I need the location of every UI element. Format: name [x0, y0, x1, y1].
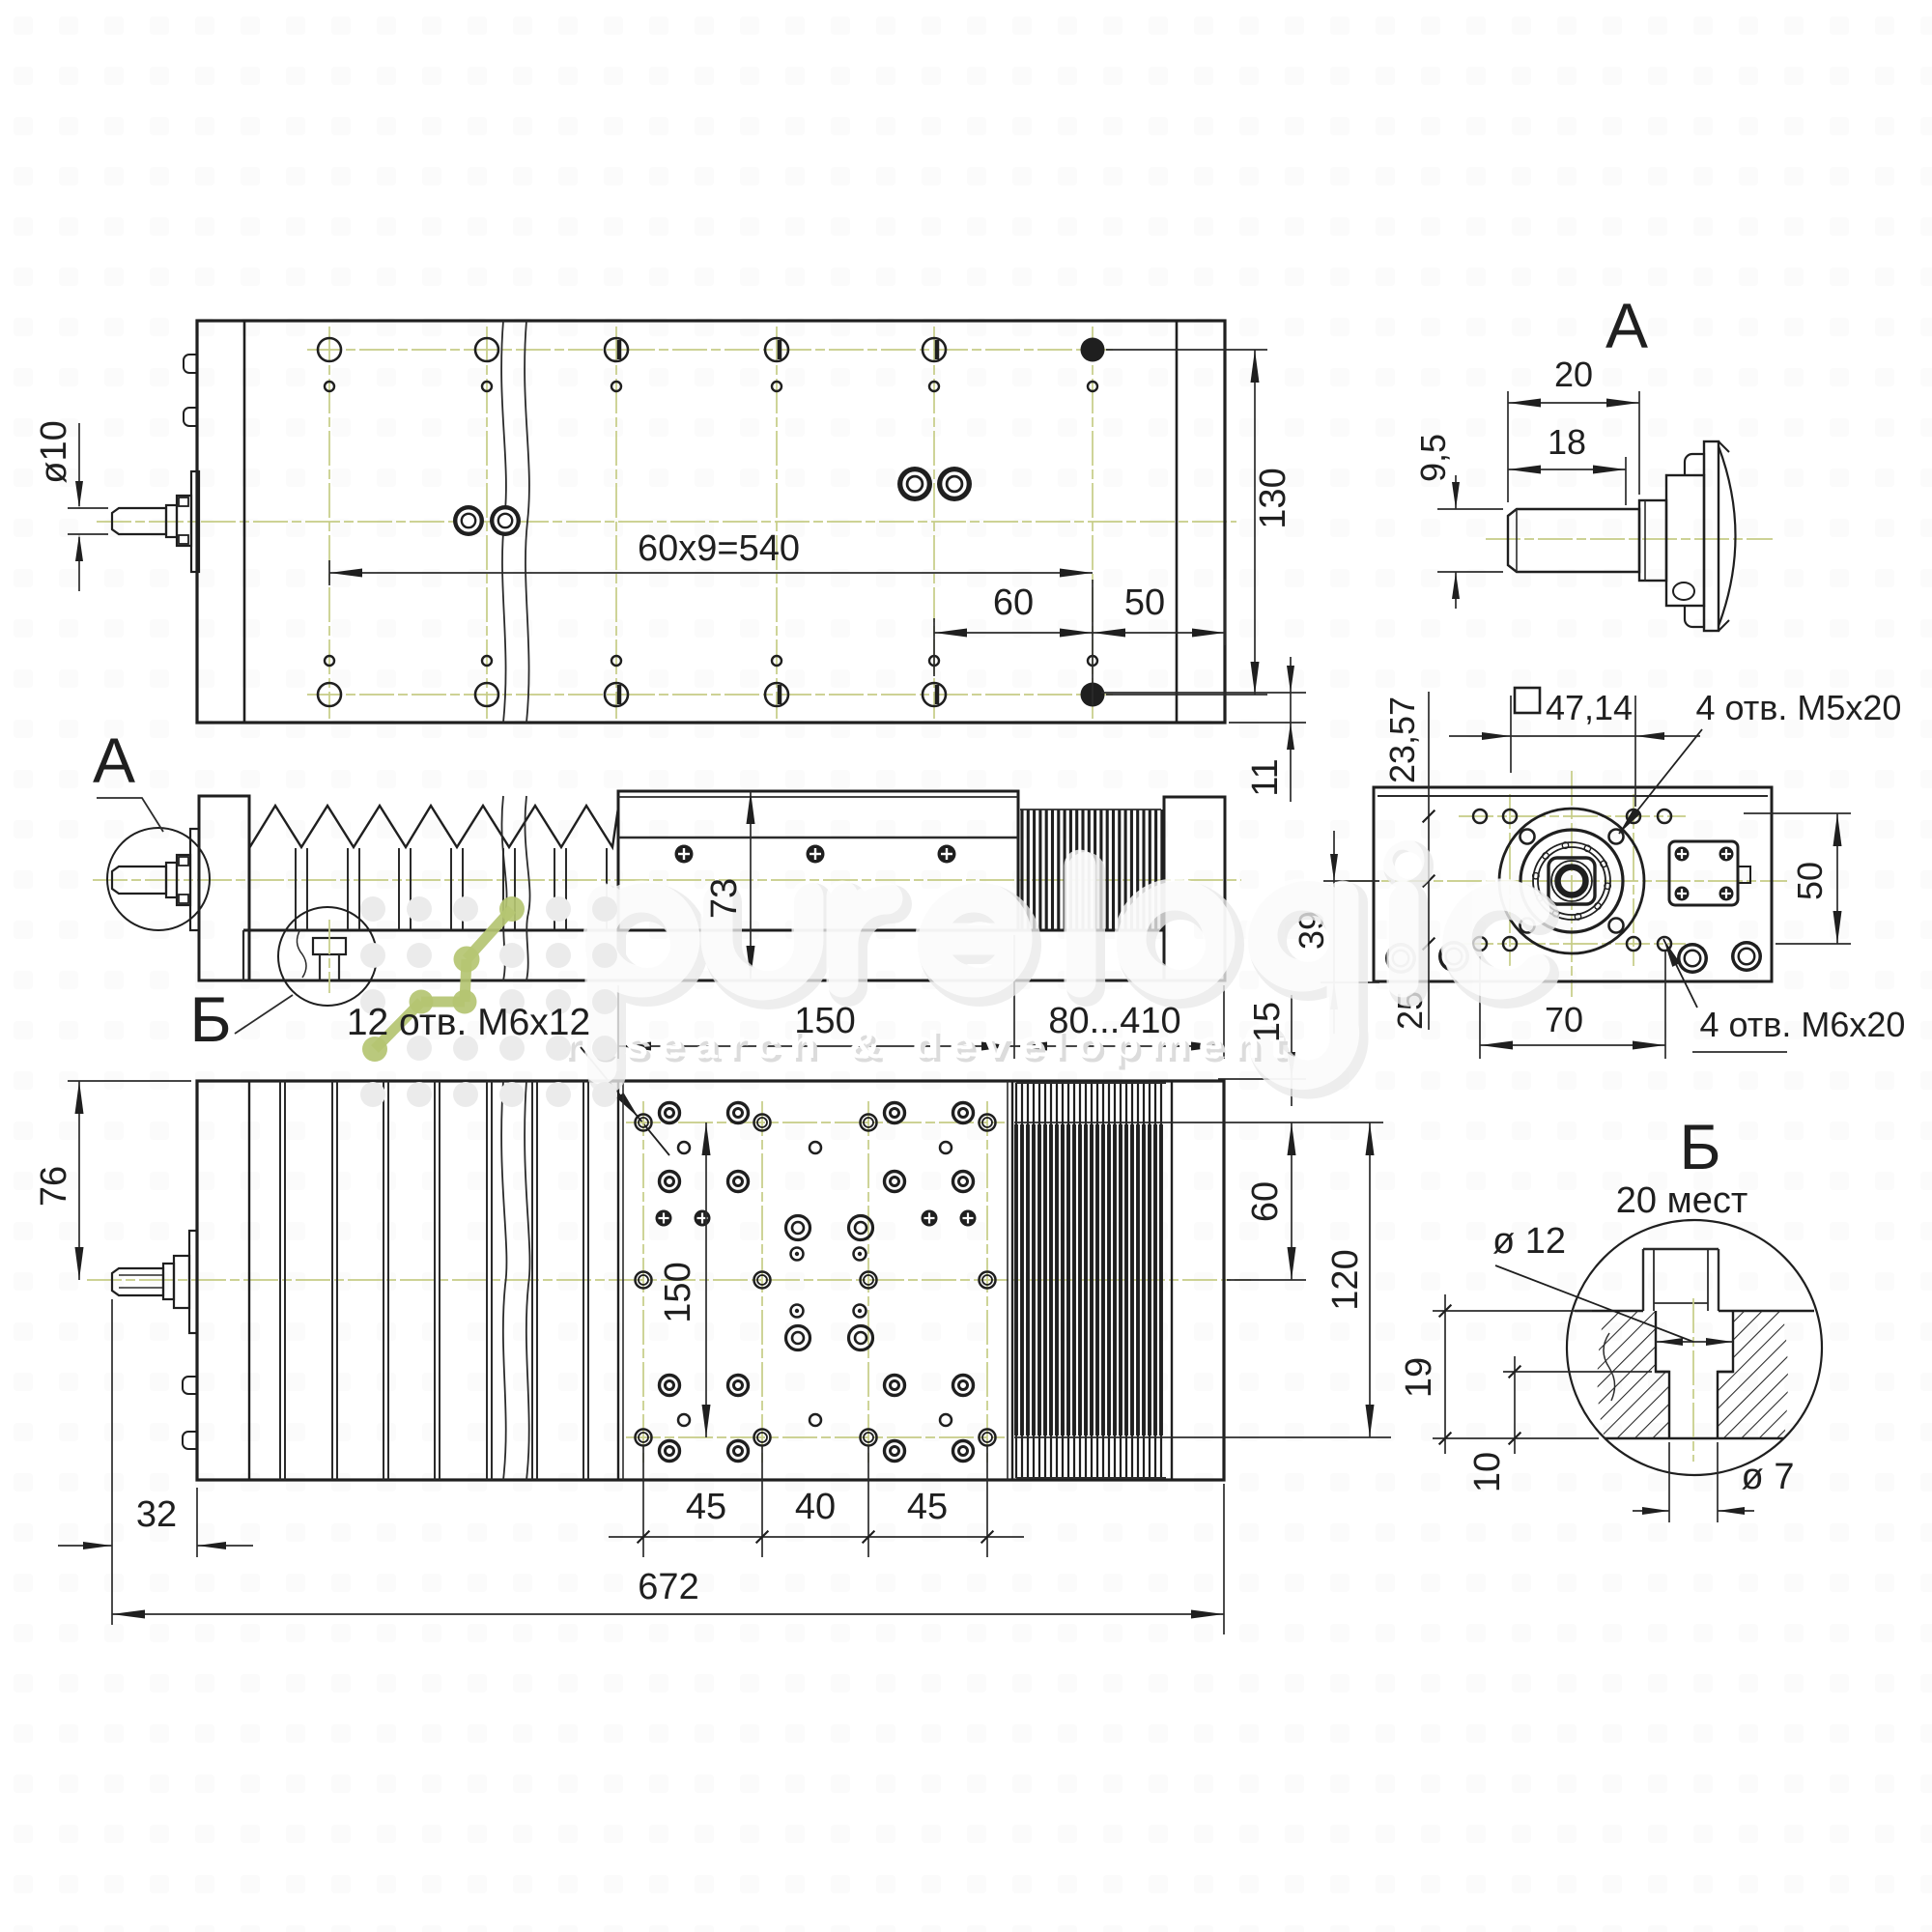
svg-text:10: 10: [1467, 1452, 1508, 1492]
svg-text:130: 130: [1253, 468, 1293, 528]
svg-text:А: А: [1605, 290, 1648, 361]
svg-text:19: 19: [1399, 1357, 1439, 1398]
svg-text:20 мест: 20 мест: [1616, 1180, 1748, 1221]
svg-text:Б: Б: [1679, 1111, 1720, 1182]
svg-text:А: А: [93, 724, 135, 796]
svg-text:research & development: research & development: [562, 1024, 1294, 1066]
svg-text:4 отв. М6х20: 4 отв. М6х20: [1700, 1005, 1906, 1044]
svg-text:9,5: 9,5: [1413, 434, 1453, 482]
svg-text:47,14: 47,14: [1546, 688, 1633, 727]
svg-text:Б: Б: [189, 983, 231, 1055]
svg-text:50: 50: [1790, 862, 1830, 900]
svg-text:40: 40: [795, 1487, 836, 1527]
svg-text:150: 150: [794, 1001, 855, 1041]
svg-text:45: 45: [686, 1487, 726, 1527]
svg-text:ø10: ø10: [34, 420, 74, 483]
svg-text:76: 76: [34, 1166, 74, 1207]
svg-text:50: 50: [1124, 582, 1165, 623]
svg-text:4 отв. М5х20: 4 отв. М5х20: [1696, 688, 1902, 727]
svg-text:18: 18: [1548, 422, 1586, 462]
svg-text:73: 73: [704, 878, 745, 919]
svg-text:80...410: 80...410: [1048, 1001, 1180, 1041]
svg-text:60x9=540: 60x9=540: [638, 528, 800, 569]
svg-text:672: 672: [638, 1567, 698, 1607]
svg-text:70: 70: [1545, 1000, 1583, 1039]
svg-text:60: 60: [993, 582, 1034, 623]
svg-text:15: 15: [1247, 1002, 1288, 1042]
svg-text:45: 45: [907, 1487, 948, 1527]
svg-text:60: 60: [1245, 1181, 1286, 1222]
svg-text:150: 150: [658, 1262, 698, 1322]
svg-text:20: 20: [1554, 355, 1593, 394]
svg-text:11: 11: [1245, 758, 1286, 796]
svg-text:12 отв. М6х12: 12 отв. М6х12: [347, 1002, 590, 1043]
svg-text:32: 32: [136, 1494, 177, 1535]
svg-text:120: 120: [1325, 1249, 1366, 1310]
svg-text:23,57: 23,57: [1382, 696, 1422, 783]
svg-text:ø 12: ø 12: [1492, 1221, 1566, 1262]
svg-text:ø 7: ø 7: [1742, 1457, 1795, 1497]
